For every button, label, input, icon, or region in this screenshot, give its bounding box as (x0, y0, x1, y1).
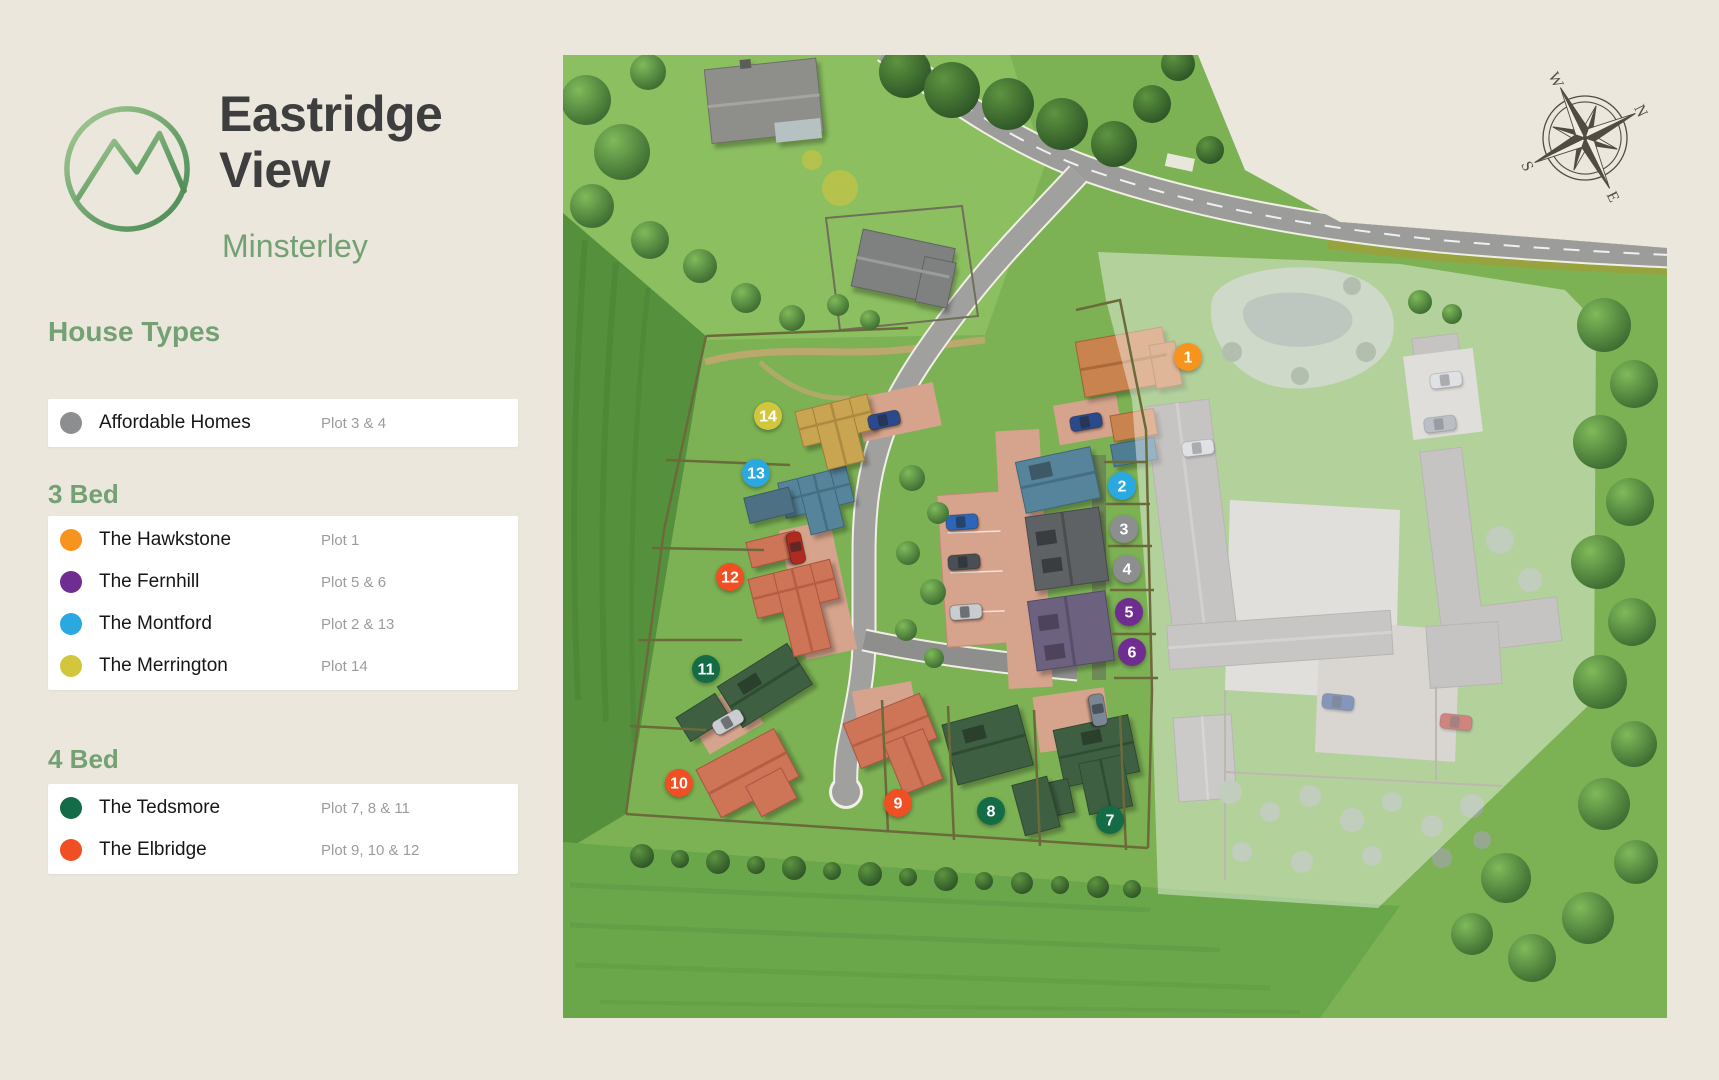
legend-item-tedsmore: The Tedsmore Plot 7, 8 & 11 (48, 787, 518, 829)
legend-heading-3bed: 3 Bed (48, 479, 119, 510)
plot-marker-8[interactable]: 8 (977, 797, 1005, 825)
house-type-plots: Plot 9, 10 & 12 (321, 842, 419, 859)
plot-marker-13[interactable]: 13 (742, 459, 770, 487)
location-subtitle: Minsterley (222, 228, 368, 265)
compass-south-label: S (1517, 159, 1536, 174)
house-type-plots: Plot 3 & 4 (321, 415, 386, 432)
house-type-name: The Merrington (99, 655, 228, 677)
legend-item-montford: The Montford Plot 2 & 13 (48, 603, 518, 645)
title-line-1: Eastridge (219, 86, 442, 142)
site-plan-map: 1 2 3 4 5 6 7 (563, 55, 1667, 1018)
color-dot-fernhill (60, 571, 82, 593)
plot-number: 5 (1125, 605, 1134, 622)
house-type-plots: Plot 14 (321, 658, 368, 675)
legend-card-4bed: The Tedsmore Plot 7, 8 & 11 The Elbridge… (48, 784, 518, 874)
compass-west-label: W (1545, 70, 1567, 92)
plot-marker-11[interactable]: 11 (692, 655, 720, 683)
plot-marker-6[interactable]: 6 (1118, 638, 1146, 666)
plot-marker-10[interactable]: 10 (665, 769, 693, 797)
color-dot-elbridge (60, 839, 82, 861)
legend-item-hawkstone: The Hawkstone Plot 1 (48, 519, 518, 561)
house-type-plots: Plot 5 & 6 (321, 574, 386, 591)
legend-title: House Types (48, 316, 220, 348)
plot-number: 6 (1128, 645, 1137, 662)
legend-card-3bed: The Hawkstone Plot 1 The Fernhill Plot 5… (48, 516, 518, 690)
plot-number: 8 (987, 804, 996, 821)
legend-item-fernhill: The Fernhill Plot 5 & 6 (48, 561, 518, 603)
house-plots-3-4 (1025, 507, 1109, 591)
color-dot-hawkstone (60, 529, 82, 551)
plot-number: 4 (1123, 562, 1132, 579)
color-dot-montford (60, 613, 82, 635)
yellow-tree (822, 170, 858, 206)
house-type-name: The Elbridge (99, 839, 207, 861)
plot-marker-14[interactable]: 14 (754, 402, 782, 430)
plot-marker-7[interactable]: 7 (1096, 806, 1124, 834)
house-type-name: The Fernhill (99, 571, 199, 593)
plot-number: 12 (721, 570, 739, 587)
compass-north-label: N (1630, 102, 1651, 120)
title-line-2: View (219, 142, 442, 198)
plot-number: 13 (747, 466, 765, 483)
house-type-name: The Tedsmore (99, 797, 220, 819)
legend-item-elbridge: The Elbridge Plot 9, 10 & 12 (48, 829, 518, 871)
house-type-name: The Hawkstone (99, 529, 231, 551)
plot-marker-12[interactable]: 12 (716, 563, 744, 591)
house-type-plots: Plot 2 & 13 (321, 616, 394, 633)
house-type-plots: Plot 1 (321, 532, 359, 549)
plot-number: 11 (698, 662, 715, 679)
plot-number: 2 (1118, 479, 1127, 496)
plot-marker-9[interactable]: 9 (884, 789, 912, 817)
legend-card-affordable: Affordable Homes Plot 3 & 4 (48, 399, 518, 447)
house-type-name: Affordable Homes (99, 412, 251, 434)
compass-rose-icon: N E S W (1510, 63, 1660, 213)
legend-item-affordable-homes: Affordable Homes Plot 3 & 4 (48, 402, 518, 444)
plot-number: 10 (670, 776, 688, 793)
house-plots-5-6 (1027, 591, 1114, 671)
plot-marker-3[interactable]: 3 (1110, 515, 1138, 543)
plot-number: 9 (894, 796, 903, 813)
plot-number: 7 (1106, 813, 1115, 830)
plot-number: 14 (759, 409, 777, 426)
eastridge-logo-icon (58, 100, 196, 238)
page-title: Eastridge View (219, 86, 442, 198)
legend-heading-4bed: 4 Bed (48, 744, 119, 775)
plot-marker-4[interactable]: 4 (1113, 555, 1141, 583)
plot-number: 1 (1184, 350, 1193, 367)
plot-marker-2[interactable]: 2 (1108, 472, 1136, 500)
house-type-plots: Plot 7, 8 & 11 (321, 800, 410, 817)
plot-number: 3 (1120, 522, 1129, 539)
color-dot-merrington (60, 655, 82, 677)
house-type-name: The Montford (99, 613, 212, 635)
plot-marker-1[interactable]: 1 (1174, 343, 1202, 371)
legend-item-merrington: The Merrington Plot 14 (48, 645, 518, 687)
plot-marker-5[interactable]: 5 (1115, 598, 1143, 626)
site-plan-page: Eastridge View Minsterley House Types Af… (0, 0, 1719, 1080)
color-dot-affordable (60, 412, 82, 434)
color-dot-tedsmore (60, 797, 82, 819)
compass-east-label: E (1603, 189, 1623, 205)
existing-house-north (704, 55, 824, 149)
